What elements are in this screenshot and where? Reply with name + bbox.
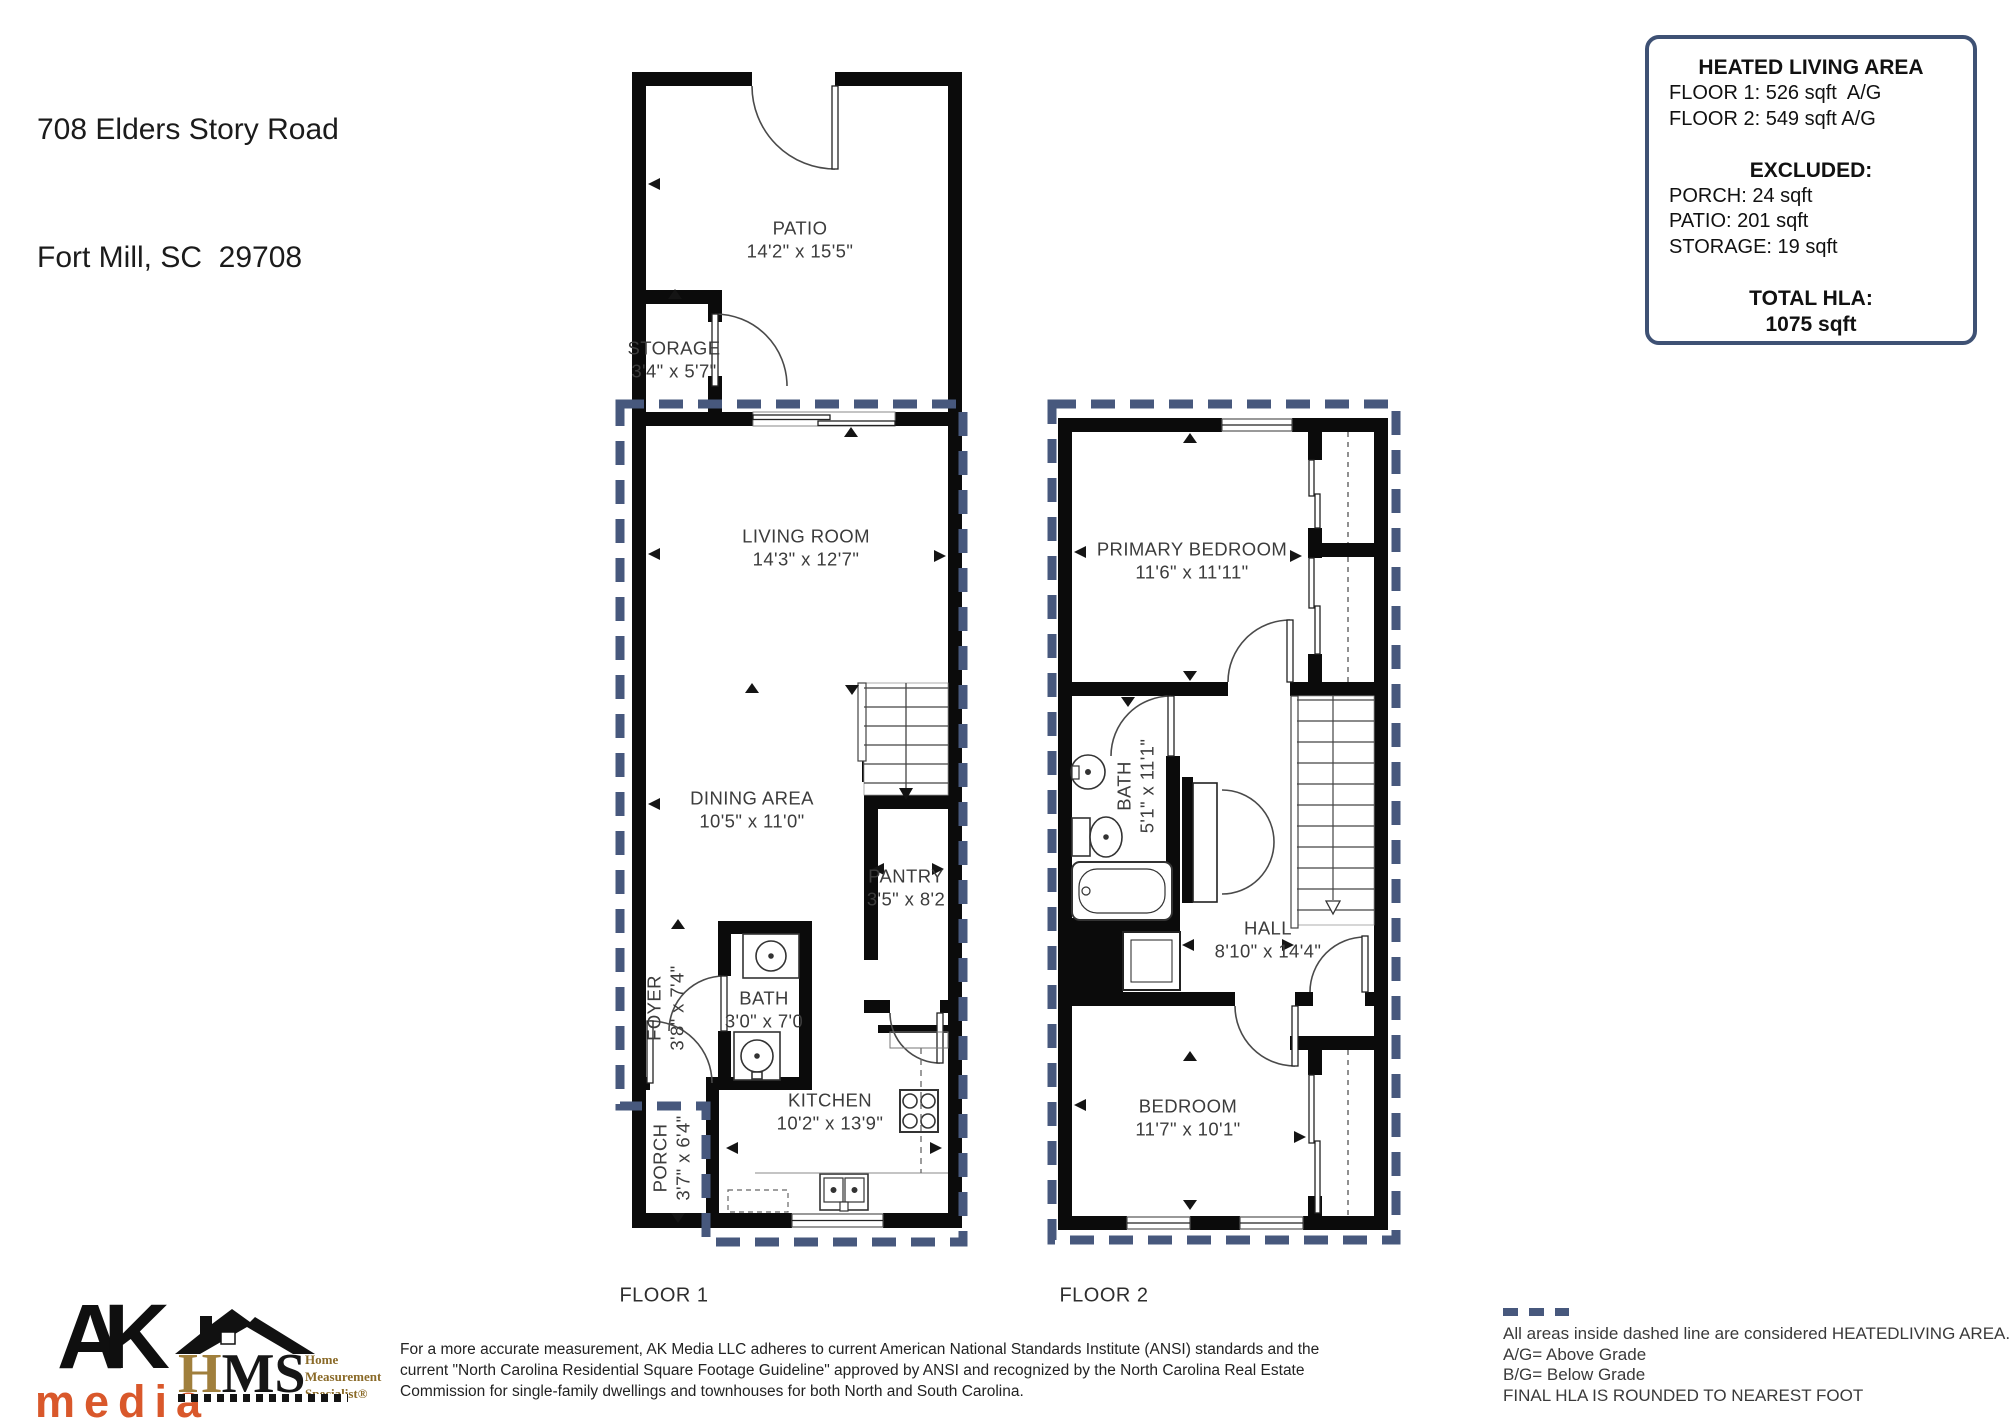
stove-icon: [900, 1090, 938, 1132]
linen-closet-door-arc: [1222, 790, 1274, 842]
room-label-porch: PORCH 3'7" x 6'4": [649, 1115, 694, 1200]
room-label-bedroom: BEDROOM 11'7" x 10'1": [1135, 1095, 1240, 1140]
room-label-living-room: LIVING ROOM 14'3" x 12'7": [742, 525, 870, 570]
room-label-bath1: BATH 3'0" x 7'0: [725, 987, 803, 1032]
bedroom-door-arc: [1235, 1006, 1295, 1066]
sliding-door-panel: [753, 415, 830, 420]
floorplan-page: 708 Elders Story Road Fort Mill, SC 2970…: [0, 0, 2011, 1422]
kitchen-sink-icon: [820, 1174, 868, 1211]
sliding-door-panel: [1315, 606, 1320, 654]
floorplan-graphics: [0, 0, 2011, 1422]
sliding-door-panel: [1309, 1075, 1314, 1143]
linen-closet-door-arc: [1222, 842, 1274, 894]
dashed-line-sample: [1503, 1308, 1569, 1316]
bath2-sink-icon: [1071, 755, 1105, 789]
floor2-stairs-icon: [1291, 696, 1374, 928]
legend-line1: All areas inside dashed line are conside…: [1503, 1324, 2010, 1345]
counter-dashed-box: [728, 1190, 788, 1212]
sliding-door-panel: [1309, 558, 1314, 608]
primary-door-arc: [1228, 620, 1290, 682]
room-label-pantry: PANTRY 3'5" x 8'2: [867, 865, 945, 910]
floor2-caption: FLOOR 2: [1059, 1285, 1148, 1308]
patio-door-arc: [752, 86, 835, 169]
sliding-door-panel: [818, 421, 895, 426]
bathtub-icon: [1072, 862, 1172, 920]
floor1-fixtures: [728, 934, 948, 1212]
room-label-dining-area: DINING AREA 10'5" x 11'0": [690, 787, 814, 832]
legend-bg: B/G= Below Grade: [1503, 1365, 2010, 1386]
sliding-door-panel: [1309, 460, 1314, 496]
hla-legend: All areas inside dashed line are conside…: [1503, 1308, 2010, 1407]
linen-closet: [1193, 783, 1217, 902]
storage-door-arc: [715, 314, 787, 386]
sliding-door-panel: [1315, 494, 1320, 528]
pantry-door-arc: [890, 1013, 940, 1063]
legend-final: FINAL HLA IS ROUNDED TO NEAREST FOOT: [1503, 1386, 2010, 1407]
room-label-primary-bedroom: PRIMARY BEDROOM 11'6" x 11'11": [1097, 538, 1287, 583]
room-label-kitchen: KITCHEN 10'2" x 13'9": [777, 1089, 884, 1134]
bath-sink-icon: [743, 934, 799, 978]
sliding-door-panel: [1315, 1141, 1320, 1213]
toilet-icon: [734, 1032, 780, 1080]
floor1-caption: FLOOR 1: [619, 1285, 708, 1308]
hms-checker-strip: [178, 1394, 348, 1402]
legend-ag: A/G= Above Grade: [1503, 1345, 2010, 1366]
measurement-disclaimer: For a more accurate measurement, AK Medi…: [400, 1340, 1358, 1402]
room-label-foyer: FOYER 3'8" x 7'4": [643, 965, 688, 1050]
room-label-bath2: BATH 5'1" x 11'1": [1113, 739, 1158, 834]
floor1-stairs-icon: [858, 683, 948, 800]
room-label-hall: HALL 8'10" x 14'4": [1215, 917, 1322, 962]
room-label-storage: STORAGE 3'4" x 5'7": [628, 337, 721, 382]
room-label-patio: PATIO 14'2" x 15'5": [747, 217, 854, 262]
